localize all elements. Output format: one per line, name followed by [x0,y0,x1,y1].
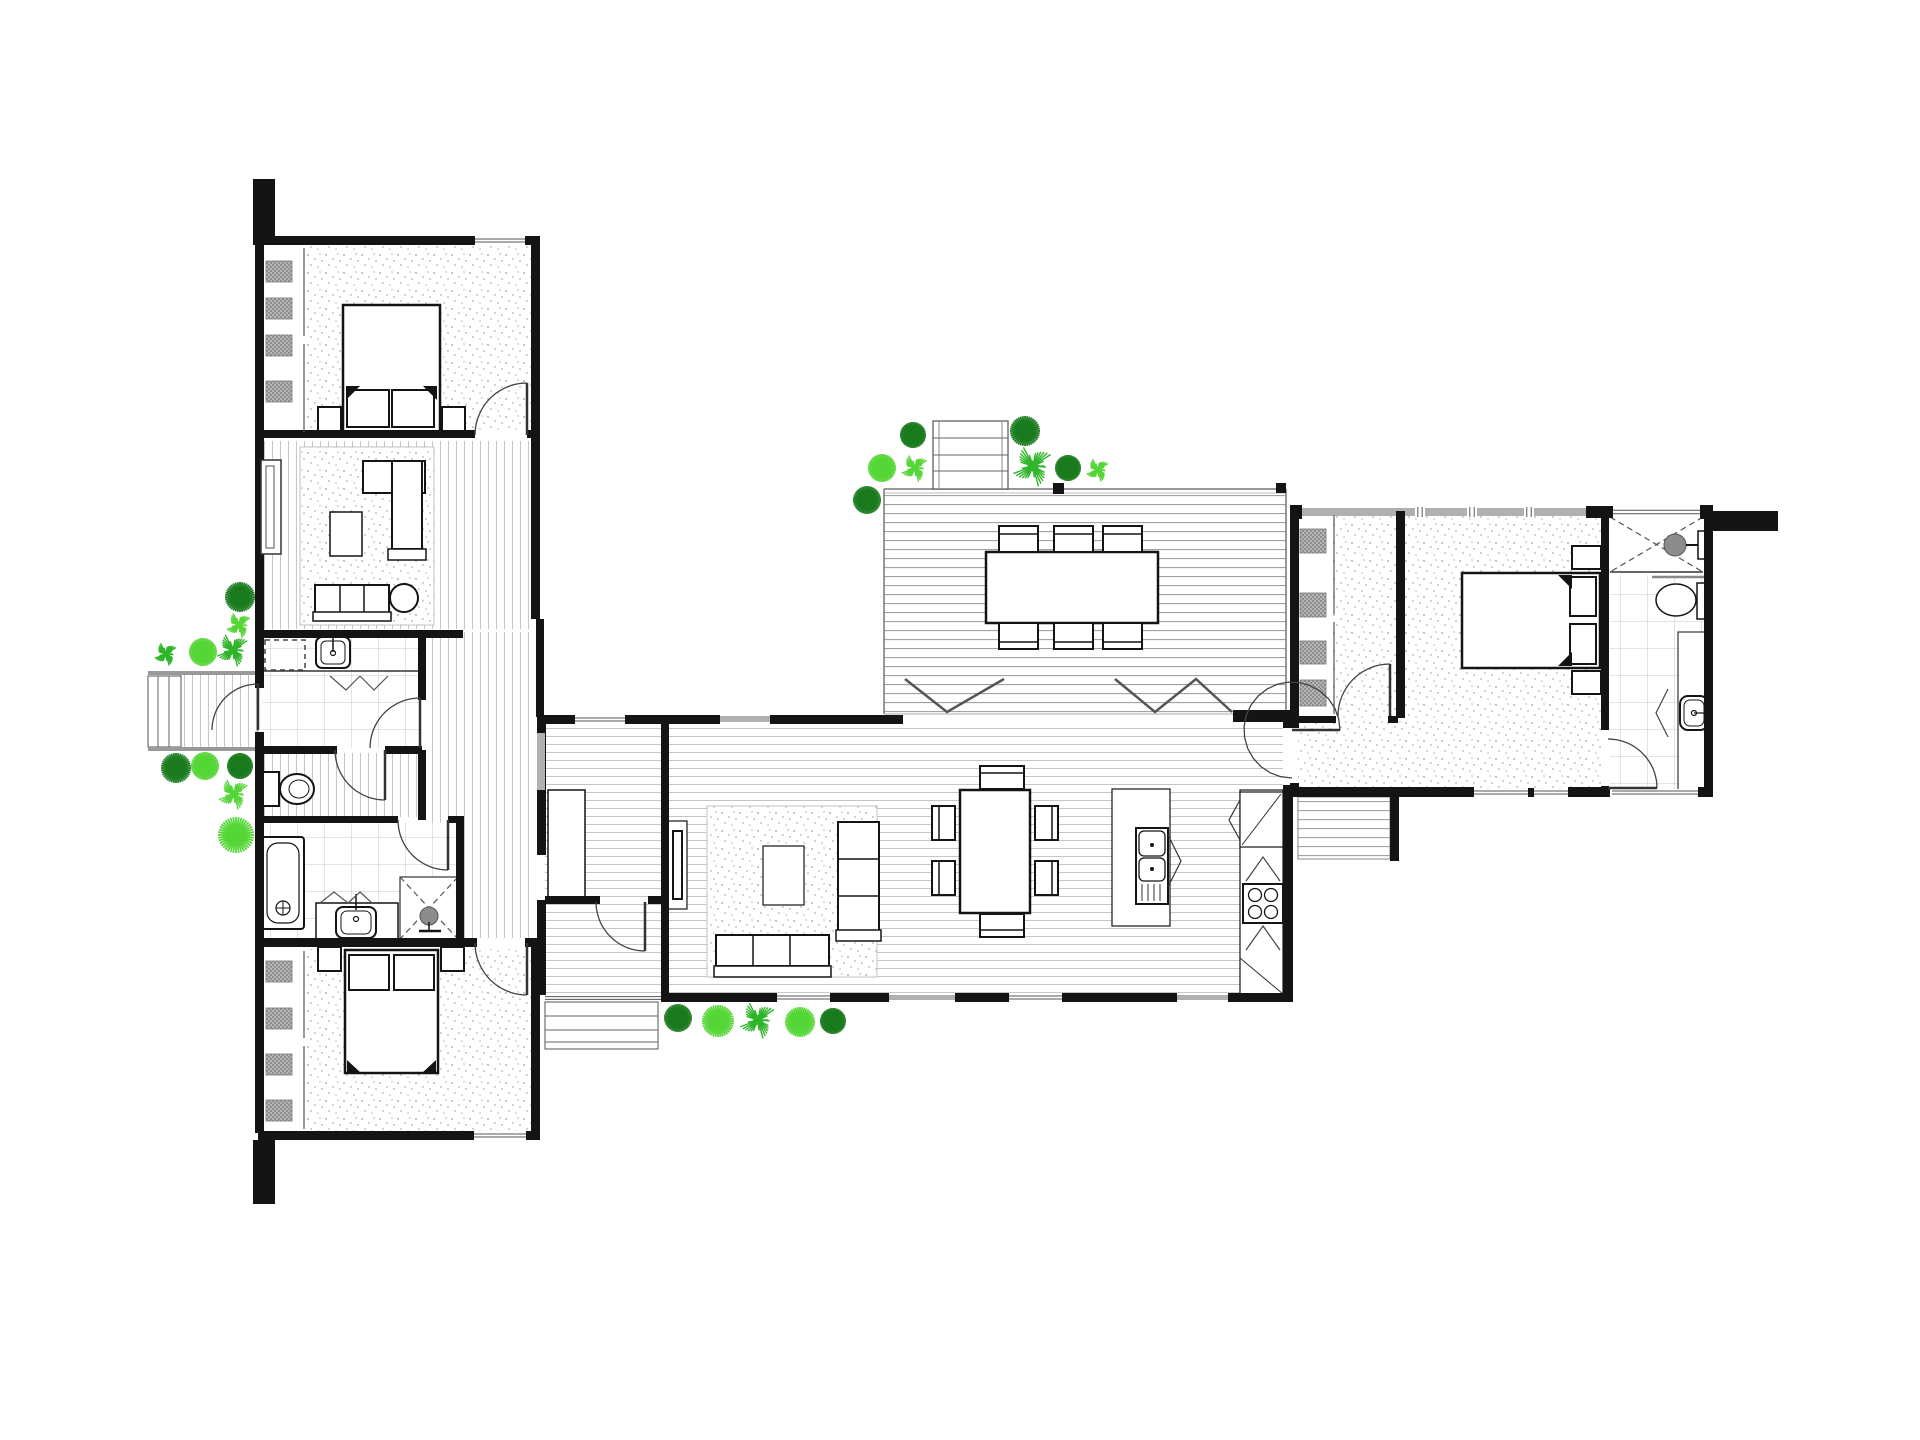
wall-rw-west [1290,505,1299,728]
window-sill [889,995,955,1000]
wall-stub-landing [1390,795,1399,861]
tree-d [227,753,253,779]
tree-m [217,635,247,667]
tree-center [233,590,248,605]
window-tick [1524,507,1534,517]
bed1-pillow [347,390,389,427]
tree-center [860,493,874,507]
tree-ray [241,771,242,778]
wall [258,746,337,754]
nightstand [318,407,341,431]
tree-ray [204,658,205,666]
wall [526,1131,540,1140]
outdoor-chair [999,623,1038,649]
bed1-pillow [392,390,434,427]
tree-ray [1055,469,1062,470]
outdoor-chair [1054,623,1093,649]
floor-plan-canvas [0,0,1920,1440]
tree-d [820,1008,846,1034]
louvre-block [266,261,292,282]
tree-m [1013,447,1050,486]
bed2-pillow [349,955,389,990]
wall-kitchen-east [1283,785,1293,1001]
wall [418,630,426,700]
tree-ray [203,752,204,760]
tree-ray [853,501,861,502]
wall-west [255,732,264,1133]
louvre-block [266,298,292,319]
tree-center [230,790,238,798]
wall-living-south [955,993,1009,1002]
tree-ray [684,1016,692,1017]
tree-ray [868,506,869,514]
sofa2-base [313,612,391,621]
tree-center [907,429,920,442]
wall-living-south [1062,993,1177,1002]
tree-center [753,1015,763,1025]
dining-chair [1035,806,1058,840]
wall-lobby [648,896,663,904]
window [474,1132,526,1139]
tree-center [1018,424,1033,439]
tree-center [196,645,210,659]
tree-l [868,454,896,482]
tree-l [189,638,217,666]
tv-screen [673,831,682,899]
tree-center [793,1015,808,1030]
tree-d [225,582,255,612]
sofa-l-base [388,549,426,560]
wall-rw-south-tick [1528,788,1534,797]
wardrobe-lobby [548,790,585,898]
tree-ray [911,422,912,429]
window [1534,789,1568,796]
wall-living-south [830,993,889,1002]
tree-l [785,1007,815,1037]
wall-living-south [661,993,777,1002]
coffee-table-small [330,512,362,556]
nightstand [318,947,341,971]
window-tick [1467,507,1477,517]
louvre-block [266,335,292,356]
dining-chair [1035,861,1058,895]
tree-l [218,817,254,853]
wall [258,816,398,823]
tree-ray [865,486,866,494]
chaise-base [836,930,881,941]
tree-l [191,752,219,780]
wall-ensuite [1601,786,1609,797]
wall-stub-bottom-left [253,1140,275,1204]
wall-corridor-east [536,619,544,717]
tree-center [710,1013,726,1029]
window [575,716,625,723]
dining-table [960,790,1030,913]
tree-l [902,456,927,482]
tree-m [740,1003,774,1038]
louvre-block [266,1054,292,1075]
glazing-living-west [537,733,545,790]
window [1009,994,1062,1001]
tree-ray [883,474,884,482]
tree-ray [191,767,199,768]
wall-interior [661,724,669,995]
wall-living-north [625,715,720,724]
tree-l [227,613,250,637]
wall-east-lower [531,938,540,1140]
wall [258,630,463,638]
window-tick [1415,507,1425,517]
bed2-pillow [394,955,434,990]
tree-center [169,761,184,776]
louvre-block [266,1100,292,1121]
bed-master-pillow [1570,577,1596,616]
wall [258,430,475,438]
tree-ray [664,1019,672,1020]
wall-rw-south [1290,787,1474,797]
tree-ray [1066,455,1067,462]
wall-robe-south [1296,716,1336,723]
louvre-block [266,1008,292,1029]
tree-center [229,646,238,655]
wall [448,816,464,823]
tree-ray [211,764,219,765]
wall-living-north [770,715,903,724]
tree-ray [888,466,896,467]
tree-d [900,422,926,448]
outdoor-chair [1103,526,1142,552]
bed-master-pillow [1570,624,1596,664]
tree-d [1055,455,1081,481]
tree-ray [206,772,207,780]
tree-center [163,651,169,657]
side-table-round [390,584,418,612]
tree-ray [245,764,252,765]
tree-ray [679,1024,680,1032]
sink-drain [1150,843,1154,847]
window-box-sitting [261,460,281,554]
window-sill [1177,995,1228,1000]
ensuite-toilet-bowl [1656,584,1696,616]
tree-ray [900,436,907,437]
nightstand [442,407,465,431]
outdoor-chair [1103,623,1142,649]
tree-center [1095,467,1101,473]
tree-d [853,486,881,514]
wall-living-south [1228,993,1293,1002]
tree-center [227,826,245,844]
louvre-block [266,961,292,982]
wall-east-upper [531,240,540,619]
louvre-block [266,381,292,402]
wall-ensuite [1601,513,1609,730]
louvre-block [1300,593,1326,617]
window [777,994,830,1001]
wall [256,236,475,245]
window [1612,789,1698,796]
tree-ray [676,1004,677,1012]
living-wing-floor [545,724,1283,993]
wall [385,746,422,754]
tree-ray [918,433,925,434]
tree-l [1087,459,1108,481]
tree-ray [201,638,202,646]
tree-ray [914,440,915,447]
tree-ray [880,454,881,462]
tree-center [827,1015,840,1028]
wall [258,938,477,947]
window [1613,508,1700,516]
nightstand [1572,546,1601,569]
coffee-table [763,846,804,905]
tree-center [236,622,243,629]
tree-ray [238,753,239,760]
sink-drain [1150,867,1154,871]
wall-living-north [537,715,575,724]
window-sill [720,716,770,722]
wall-stub-deck [1233,710,1290,722]
wall-rw-east [1704,505,1713,797]
dining-chair [980,766,1024,789]
tree-ray [838,1019,845,1020]
wall-robe [1396,511,1405,718]
tree-ray [834,1026,835,1033]
tree-center [671,1011,685,1025]
wall-stub-top-left [253,179,275,245]
wall-robe-south [1388,716,1398,723]
wall [418,750,426,820]
tree-center [911,464,918,471]
wall [456,823,464,942]
wall [258,1131,474,1140]
window [475,237,525,244]
tree-center [1062,462,1075,475]
tree-ray [209,650,217,651]
sofa-l-chaise [392,461,422,549]
deck-post [1053,483,1064,494]
tree-m [155,643,176,665]
outdoor-chair [1054,526,1093,552]
wall-stub-top-right [1713,511,1778,531]
tree-ray [189,653,197,654]
nightstand [1572,671,1601,694]
dining-chair [932,861,955,895]
rear-landing-floor [1298,797,1390,859]
plan-render-root [148,179,1778,1204]
tree-d [161,753,191,783]
sofa-main-base [714,966,831,977]
tree-d [664,1004,692,1032]
dining-chair [980,914,1024,937]
tree-d [1010,416,1040,446]
deck-post [1276,483,1286,493]
porch-step-box [148,676,181,747]
tree-ray [873,498,881,499]
outdoor-chair [999,526,1038,552]
nightstand [441,947,464,971]
sofa-main-seat [716,935,829,966]
bath-basin [336,907,376,938]
tree-l [702,1005,734,1037]
louvre-block [1300,529,1326,553]
ensuite-shower-head [1664,534,1686,556]
tree-ray [868,469,876,470]
chaise-seat [838,822,879,932]
tree-ray [831,1008,832,1015]
tree-center [875,461,889,475]
sofa2-seat [315,585,389,614]
wc-cistern [262,772,279,806]
tree-center [1028,461,1039,472]
glazing-rw-north [1302,508,1586,516]
wall-lobby [545,896,600,904]
tree-ray [1069,473,1070,480]
dining-chair [932,806,955,840]
outdoor-table [986,552,1158,623]
porch-cap [148,671,258,675]
porch-cap [148,747,258,751]
floor-plan-page [0,0,1920,1440]
tree-center [234,760,247,773]
tree-l [219,780,247,810]
louvre-block [1300,641,1326,664]
tree-ray [820,1022,827,1023]
tree-ray [227,767,234,768]
window [1474,789,1528,796]
tree-ray [1073,466,1080,467]
window [545,995,661,1001]
tree-center [198,759,212,773]
cooktop [1243,884,1283,923]
